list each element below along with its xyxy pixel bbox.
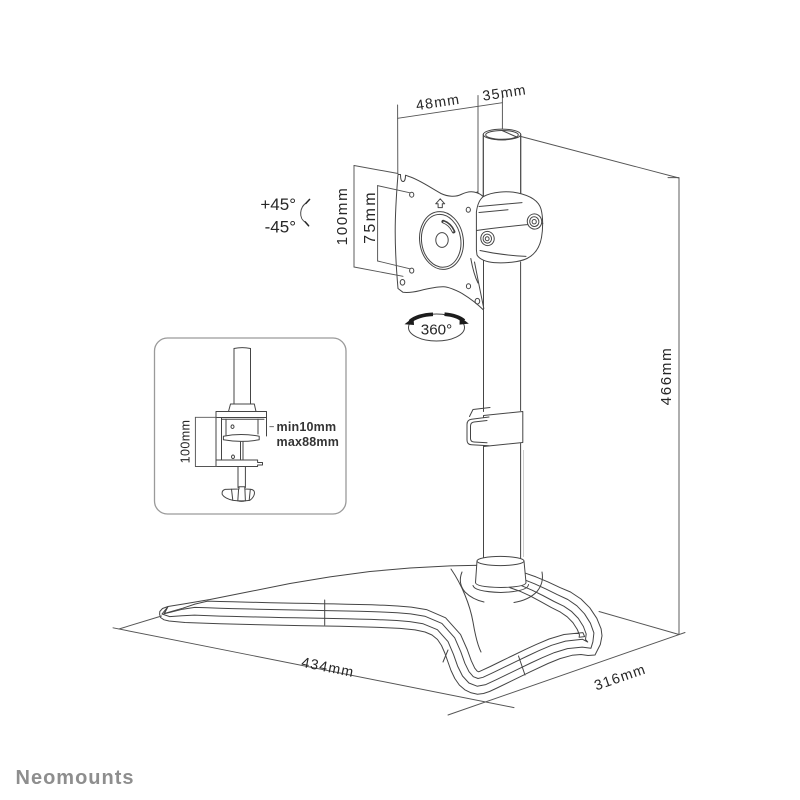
svg-text:-45°: -45°: [265, 218, 296, 237]
svg-text:+45°: +45°: [260, 195, 296, 214]
svg-text:360°: 360°: [421, 322, 452, 339]
svg-text:466mm: 466mm: [658, 347, 675, 406]
svg-text:75mm: 75mm: [362, 190, 379, 244]
svg-text:min10mm: min10mm: [277, 420, 337, 434]
svg-text:Neomounts: Neomounts: [16, 767, 135, 789]
svg-text:max88mm: max88mm: [277, 435, 340, 449]
svg-text:100mm: 100mm: [334, 187, 351, 246]
svg-text:100mm: 100mm: [179, 420, 193, 464]
